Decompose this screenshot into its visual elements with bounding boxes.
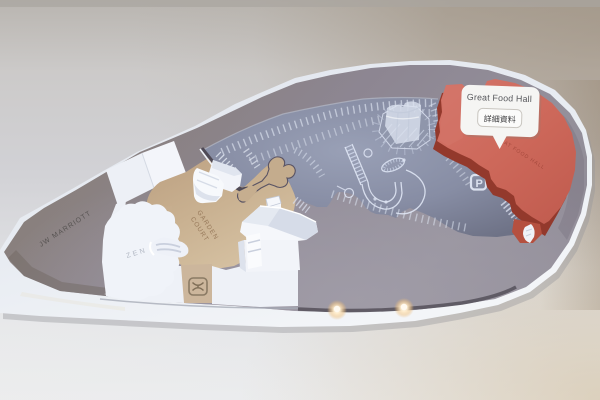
svg-text:P: P bbox=[476, 178, 483, 190]
svg-text:詳細資料: 詳細資料 bbox=[484, 113, 516, 124]
